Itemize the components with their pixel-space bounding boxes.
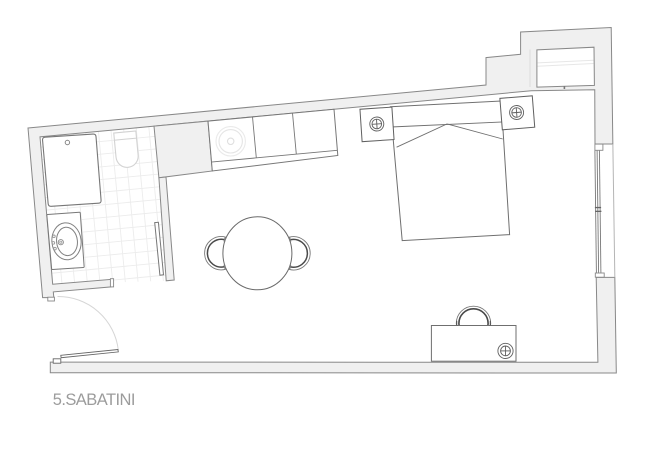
svg-text:5.SABATINI: 5.SABATINI <box>53 391 135 409</box>
